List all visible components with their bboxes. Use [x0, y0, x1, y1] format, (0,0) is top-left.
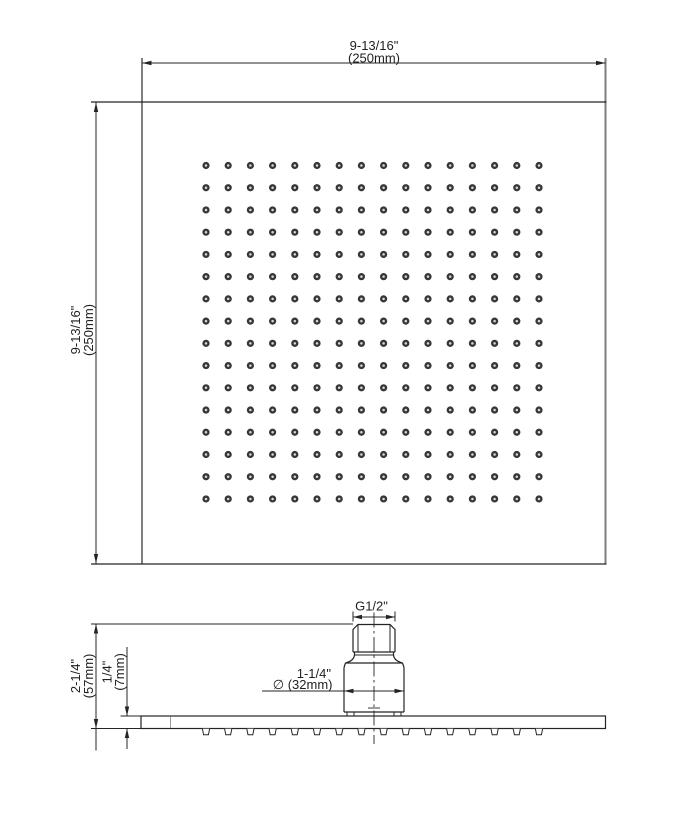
nozzle-hole-center [449, 409, 452, 412]
nozzle-hole-center [338, 409, 341, 412]
nozzle-hole-center [449, 453, 452, 456]
nozzle-hole-center [382, 409, 385, 412]
nozzle-hole-center [294, 320, 297, 323]
nozzle-hole-center [227, 231, 230, 234]
nozzle-hole-center [493, 275, 496, 278]
nozzle-hole-center [316, 431, 319, 434]
nozzle-hole-center [227, 409, 230, 412]
nozzle-hole-center [427, 186, 430, 189]
nozzle-hole-center [271, 275, 274, 278]
nozzle-hole-center [360, 409, 363, 412]
nozzle-hole-center [360, 164, 363, 167]
nozzle-hole-center [249, 186, 252, 189]
nozzle-hole-center [316, 409, 319, 412]
nozzle-hole-center [316, 387, 319, 390]
nozzle-hole-center [382, 475, 385, 478]
nozzle-hole-center [249, 231, 252, 234]
nozzle-hole-center [516, 453, 519, 456]
nozzle-hole-center [405, 164, 408, 167]
top-view: 9-13/16" (250mm) 9-13/16" (250mm) [68, 38, 607, 564]
arrowhead-right [596, 61, 606, 65]
nozzle-hole-center [471, 342, 474, 345]
nozzle-hole-center [227, 186, 230, 189]
arrowhead-bottom [94, 554, 98, 564]
arrowhead-right [386, 615, 395, 619]
nozzle-hole-center [471, 298, 474, 301]
nozzle-hole-center [316, 475, 319, 478]
nozzle-hole-center [516, 231, 519, 234]
nozzle-hole-center [471, 320, 474, 323]
nozzle-hole-center [205, 209, 208, 212]
nozzle-hole-center [205, 387, 208, 390]
nozzle-hole-center [427, 431, 430, 434]
nozzle-hole-center [471, 253, 474, 256]
nozzle-hole-center [205, 453, 208, 456]
nozzle-hole-center [493, 498, 496, 501]
nozzle-hole-center [316, 342, 319, 345]
nozzle-hole-center [516, 387, 519, 390]
nozzle-hole-center [249, 275, 252, 278]
nozzle-hole-center [338, 298, 341, 301]
nozzle-hole-center [493, 231, 496, 234]
nozzle-hole-center [338, 475, 341, 478]
nozzle-hole-center [338, 186, 341, 189]
nozzle-hole-center [338, 364, 341, 367]
nozzle-hole-center [538, 409, 541, 412]
nozzle-hole-center [271, 186, 274, 189]
nozzle-hole-center [538, 298, 541, 301]
nozzle-hole-center [227, 431, 230, 434]
nozzle-hole-center [271, 387, 274, 390]
nozzle-hole-center [516, 498, 519, 501]
nozzle-profile [447, 729, 454, 735]
nozzle-hole-center [449, 320, 452, 323]
arrowhead-down [125, 707, 129, 717]
nozzle-hole-center [360, 387, 363, 390]
nozzle-hole-center [516, 364, 519, 367]
nozzle-hole-center [493, 164, 496, 167]
nozzle-hole-center [382, 431, 385, 434]
nozzle-hole-center [427, 275, 430, 278]
nozzle-hole-center [294, 186, 297, 189]
nozzle-hole-center [360, 298, 363, 301]
width-dimension-metric: (250mm) [348, 51, 400, 66]
nozzle-hole-center [405, 498, 408, 501]
nozzle-hole-center [405, 364, 408, 367]
nozzle-hole-center [205, 320, 208, 323]
nozzle-hole-center [471, 164, 474, 167]
nozzle-hole-center [493, 298, 496, 301]
nozzle-hole-center [405, 342, 408, 345]
cylinder-chamfer-right [403, 663, 405, 668]
nozzle-hole-center [427, 253, 430, 256]
nozzle-hole-center [205, 253, 208, 256]
nozzle-hole-center [493, 186, 496, 189]
nozzle-profile [247, 729, 254, 735]
nozzle-hole-center [249, 320, 252, 323]
nozzle-hole-center [382, 498, 385, 501]
nozzle-hole-center [360, 320, 363, 323]
nozzle-hole-center [471, 475, 474, 478]
nozzle-hole-center [271, 475, 274, 478]
nozzle-hole-center [294, 475, 297, 478]
nozzle-hole-center [316, 253, 319, 256]
nozzle-hole-center [294, 342, 297, 345]
nozzle-hole-center [227, 164, 230, 167]
nozzle-hole-center [271, 209, 274, 212]
arrowhead-bottom [94, 719, 98, 729]
nozzle-hole-center [493, 475, 496, 478]
diameter-metric: ∅ (32mm) [273, 677, 333, 692]
nozzle-hole-center [538, 253, 541, 256]
nozzle-hole-center [538, 164, 541, 167]
nozzle-hole-center [427, 453, 430, 456]
nozzle-hole-center [316, 164, 319, 167]
arrowhead-left [344, 689, 354, 693]
nozzle-hole-center [227, 298, 230, 301]
nozzle-profile [291, 729, 298, 735]
nozzle-hole-center [294, 431, 297, 434]
nozzle-hole-center [382, 253, 385, 256]
nozzle-hole-center [338, 231, 341, 234]
nozzle-hole-center [316, 498, 319, 501]
nozzle-hole-center [382, 387, 385, 390]
nozzle-hole-center [205, 342, 208, 345]
nozzle-hole-center [405, 453, 408, 456]
nozzle-hole-center [538, 231, 541, 234]
nozzle-hole-center [294, 453, 297, 456]
nozzle-hole-center [471, 231, 474, 234]
height-dimension: 9-13/16" (250mm) [68, 103, 98, 564]
nozzle-hole-grid [202, 162, 542, 503]
nozzle-hole-center [493, 342, 496, 345]
nozzle-hole-center [249, 298, 252, 301]
nozzle-hole-center [405, 320, 408, 323]
nozzle-hole-center [271, 164, 274, 167]
nozzle-hole-center [316, 275, 319, 278]
nozzle-hole-center [271, 231, 274, 234]
nozzle-hole-center [538, 209, 541, 212]
arrowhead-left [142, 61, 152, 65]
nozzle-hole-center [493, 409, 496, 412]
nozzle-hole-center [427, 298, 430, 301]
nozzle-profile [469, 729, 476, 735]
nozzle-hole-center [360, 342, 363, 345]
nozzle-hole-center [227, 387, 230, 390]
nozzle-hole-center [538, 475, 541, 478]
nozzle-hole-center [382, 275, 385, 278]
nozzle-hole-center [205, 275, 208, 278]
nozzle-hole-center [427, 364, 430, 367]
nozzle-hole-center [205, 409, 208, 412]
nozzle-hole-center [471, 498, 474, 501]
cylinder-chamfer-left [344, 663, 346, 668]
nozzle-hole-center [405, 186, 408, 189]
nozzle-profile [402, 729, 409, 735]
nozzle-hole-center [427, 209, 430, 212]
nozzle-profile [313, 729, 320, 735]
nozzle-hole-center [493, 387, 496, 390]
nozzle-hole-center [382, 320, 385, 323]
nozzle-hole-center [493, 253, 496, 256]
nozzle-profile [491, 729, 498, 735]
nozzle-hole-center [360, 275, 363, 278]
overall-height-metric: (57mm) [81, 654, 96, 699]
nozzle-profile [336, 729, 343, 735]
nozzle-hole-center [382, 453, 385, 456]
nozzle-hole-center [427, 409, 430, 412]
nozzle-hole-center [205, 298, 208, 301]
nozzle-hole-center [427, 320, 430, 323]
nozzle-hole-center [449, 275, 452, 278]
nozzle-hole-center [382, 364, 385, 367]
overall-height-dimension: 2-1/4" (57mm) [68, 624, 141, 751]
nozzle-hole-center [449, 253, 452, 256]
nozzle-hole-center [516, 409, 519, 412]
nozzle-hole-center [538, 320, 541, 323]
nozzle-hole-center [405, 209, 408, 212]
nozzle-hole-center [227, 498, 230, 501]
nozzle-hole-center [493, 320, 496, 323]
nozzle-hole-center [471, 186, 474, 189]
nozzle-hole-center [538, 364, 541, 367]
nozzle-profiles [202, 729, 542, 735]
nozzle-hole-center [449, 431, 452, 434]
nozzle-hole-center [249, 387, 252, 390]
nozzle-hole-center [471, 453, 474, 456]
nozzle-hole-center [294, 209, 297, 212]
nozzle-hole-center [294, 409, 297, 412]
nozzle-hole-center [271, 253, 274, 256]
nozzle-hole-center [405, 475, 408, 478]
nozzle-hole-center [449, 364, 452, 367]
nozzle-hole-center [338, 209, 341, 212]
side-view: G1/2" 1-1/4" ∅ (32mm) 2-1/4" (57mm) 1/ [68, 599, 606, 751]
nozzle-hole-center [360, 431, 363, 434]
arrowhead-left [353, 615, 362, 619]
nozzle-hole-center [205, 431, 208, 434]
nozzle-hole-center [227, 475, 230, 478]
nozzle-hole-center [405, 298, 408, 301]
nozzle-hole-center [316, 186, 319, 189]
nozzle-hole-center [516, 298, 519, 301]
nozzle-hole-center [271, 453, 274, 456]
nozzle-hole-center [294, 275, 297, 278]
nozzle-hole-center [338, 431, 341, 434]
nozzle-hole-center [294, 231, 297, 234]
nozzle-hole-center [360, 498, 363, 501]
nozzle-hole-center [249, 453, 252, 456]
nozzle-hole-center [271, 342, 274, 345]
nozzle-hole-center [294, 164, 297, 167]
nozzle-hole-center [205, 364, 208, 367]
nozzle-hole-center [338, 253, 341, 256]
nozzle-hole-center [538, 431, 541, 434]
nozzle-profile [358, 729, 365, 735]
nozzle-hole-center [405, 387, 408, 390]
nozzle-hole-center [271, 498, 274, 501]
nozzle-hole-center [493, 364, 496, 367]
plate-profile [141, 716, 606, 729]
nozzle-hole-center [227, 209, 230, 212]
nozzle-hole-center [382, 164, 385, 167]
drawing-canvas: 9-13/16" (250mm) 9-13/16" (250mm) [0, 0, 697, 827]
nozzle-hole-center [294, 387, 297, 390]
nozzle-hole-center [538, 275, 541, 278]
nozzle-hole-center [516, 275, 519, 278]
nozzle-hole-center [516, 320, 519, 323]
nozzle-hole-center [249, 164, 252, 167]
thread-label: G1/2" [355, 599, 388, 614]
nozzle-hole-center [449, 498, 452, 501]
nozzle-hole-center [382, 342, 385, 345]
nozzle-hole-center [471, 431, 474, 434]
nozzle-hole-center [338, 498, 341, 501]
nozzle-hole-center [493, 209, 496, 212]
nozzle-hole-center [249, 431, 252, 434]
nozzle-hole-center [205, 475, 208, 478]
nozzle-hole-center [427, 164, 430, 167]
nozzle-hole-center [227, 364, 230, 367]
nozzle-hole-center [316, 231, 319, 234]
nozzle-hole-center [271, 409, 274, 412]
nozzle-hole-center [338, 342, 341, 345]
nozzle-hole-center [316, 364, 319, 367]
nozzle-hole-center [360, 209, 363, 212]
nozzle-hole-center [449, 342, 452, 345]
nozzle-hole-center [516, 186, 519, 189]
nozzle-hole-center [227, 342, 230, 345]
nozzle-hole-center [227, 253, 230, 256]
nozzle-hole-center [338, 164, 341, 167]
nozzle-hole-center [405, 431, 408, 434]
nozzle-hole-center [516, 342, 519, 345]
nozzle-hole-center [516, 164, 519, 167]
nozzle-hole-center [360, 231, 363, 234]
arrowhead-right [395, 689, 405, 693]
nozzle-hole-center [449, 475, 452, 478]
plate-thickness-metric: (7mm) [112, 653, 127, 691]
nozzle-hole-center [316, 298, 319, 301]
nozzle-hole-center [516, 475, 519, 478]
nozzle-hole-center [227, 453, 230, 456]
nozzle-profile [513, 729, 520, 735]
nozzle-hole-center [338, 387, 341, 390]
nozzle-hole-center [360, 475, 363, 478]
nozzle-hole-center [360, 253, 363, 256]
nozzle-hole-center [516, 431, 519, 434]
nozzle-hole-center [405, 253, 408, 256]
nozzle-hole-center [449, 164, 452, 167]
nozzle-hole-center [360, 364, 363, 367]
nozzle-hole-center [294, 364, 297, 367]
nozzle-hole-center [249, 475, 252, 478]
plate-thickness-dimension: 1/4" (7mm) [100, 647, 142, 749]
nozzle-hole-center [471, 209, 474, 212]
nozzle-hole-center [471, 409, 474, 412]
nozzle-hole-center [405, 231, 408, 234]
arrowhead-top [94, 103, 98, 113]
nozzle-hole-center [205, 498, 208, 501]
nozzle-hole-center [249, 409, 252, 412]
nozzle-hole-center [382, 298, 385, 301]
nozzle-hole-center [205, 186, 208, 189]
nozzle-hole-center [405, 409, 408, 412]
nozzle-hole-center [493, 431, 496, 434]
nozzle-hole-center [249, 253, 252, 256]
nozzle-hole-center [538, 387, 541, 390]
nozzle-hole-center [360, 186, 363, 189]
nozzle-hole-center [449, 231, 452, 234]
nozzle-hole-center [249, 498, 252, 501]
nozzle-hole-center [338, 453, 341, 456]
nozzle-profile [269, 729, 276, 735]
diameter-dimension: 1-1/4" ∅ (32mm) [262, 666, 404, 693]
collar-flare-right [394, 652, 403, 663]
nozzle-hole-center [316, 320, 319, 323]
nozzle-hole-center [471, 364, 474, 367]
nozzle-hole-center [449, 387, 452, 390]
arrowhead-top [94, 624, 98, 634]
nozzle-hole-center [338, 320, 341, 323]
nozzle-hole-center [427, 498, 430, 501]
nozzle-profile [535, 729, 542, 735]
nozzle-hole-center [471, 387, 474, 390]
nozzle-profile [202, 729, 209, 735]
nozzle-hole-center [449, 209, 452, 212]
nozzle-hole-center [493, 453, 496, 456]
nozzle-hole-center [316, 453, 319, 456]
nozzle-profile [225, 729, 232, 735]
nozzle-hole-center [271, 431, 274, 434]
nozzle-hole-center [538, 498, 541, 501]
nozzle-hole-center [516, 253, 519, 256]
shower-head-technical-drawing: 9-13/16" (250mm) 9-13/16" (250mm) [0, 0, 697, 827]
nozzle-hole-center [205, 231, 208, 234]
nozzle-hole-center [360, 453, 363, 456]
nozzle-hole-center [271, 298, 274, 301]
nozzle-hole-center [538, 186, 541, 189]
nozzle-hole-center [338, 275, 341, 278]
height-dimension-metric: (250mm) [81, 304, 96, 356]
nozzle-hole-center [427, 231, 430, 234]
nozzle-hole-center [382, 186, 385, 189]
nozzle-profile [424, 729, 431, 735]
nozzle-hole-center [316, 209, 319, 212]
arrowhead-up [125, 729, 129, 739]
nozzle-hole-center [382, 231, 385, 234]
nozzle-hole-center [449, 298, 452, 301]
nozzle-hole-center [449, 186, 452, 189]
nozzle-hole-center [405, 275, 408, 278]
nozzle-hole-center [249, 209, 252, 212]
nozzle-hole-center [382, 209, 385, 212]
nozzle-hole-center [205, 164, 208, 167]
width-dimension: 9-13/16" (250mm) [142, 38, 606, 66]
nozzle-hole-center [227, 275, 230, 278]
nozzle-hole-center [427, 342, 430, 345]
nozzle-hole-center [471, 275, 474, 278]
nozzle-hole-center [294, 298, 297, 301]
collar-flare-left [346, 652, 355, 663]
nozzle-hole-center [249, 342, 252, 345]
nozzle-hole-center [271, 320, 274, 323]
nozzle-hole-center [538, 342, 541, 345]
nozzle-hole-center [294, 498, 297, 501]
nozzle-hole-center [427, 387, 430, 390]
nozzle-profile [380, 729, 387, 735]
nozzle-hole-center [227, 320, 230, 323]
